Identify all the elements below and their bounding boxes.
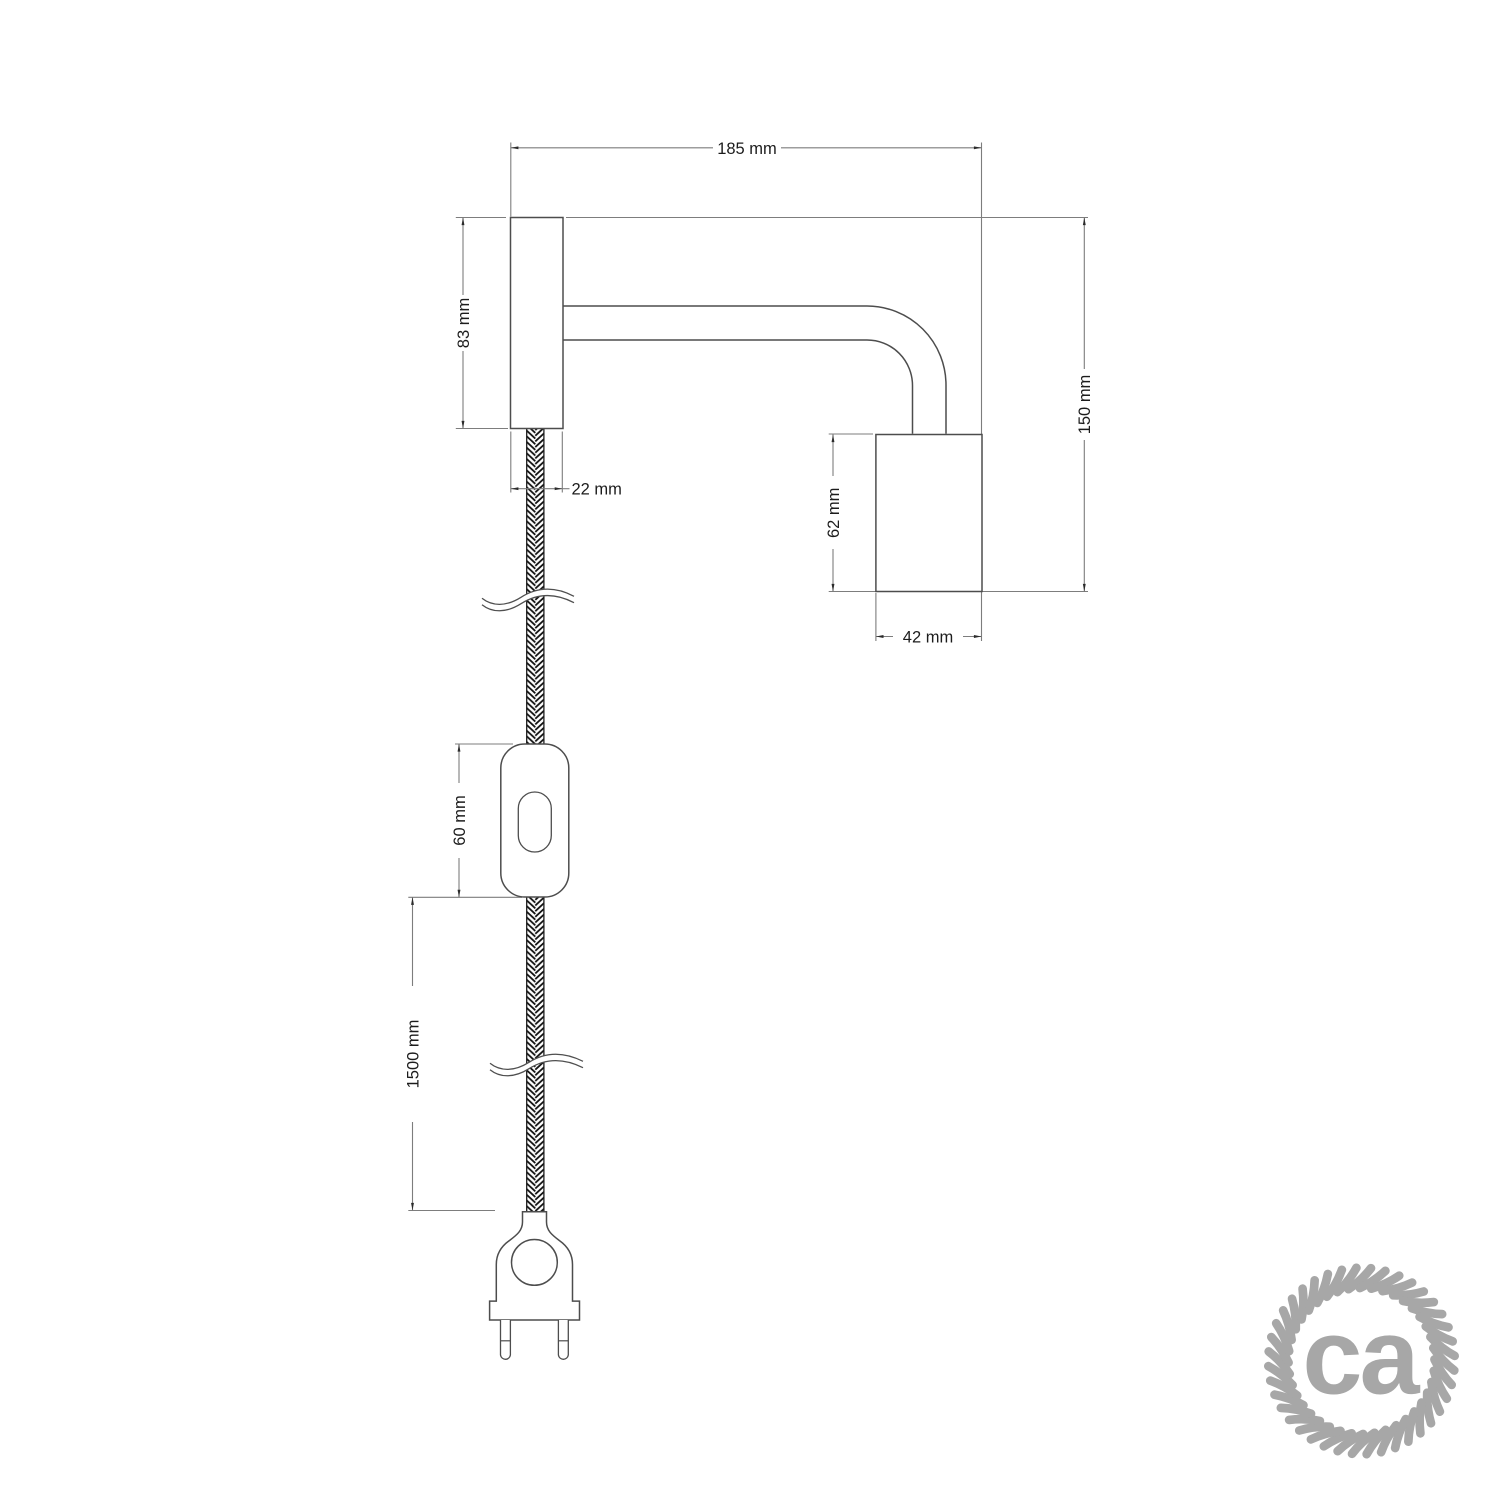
svg-text:150 mm: 150 mm	[1076, 375, 1094, 435]
svg-text:1500 mm: 1500 mm	[404, 1020, 422, 1089]
svg-text:22 mm: 22 mm	[572, 481, 622, 499]
svg-text:60 mm: 60 mm	[451, 795, 469, 845]
svg-text:42 mm: 42 mm	[903, 629, 953, 647]
svg-text:62 mm: 62 mm	[825, 488, 843, 538]
svg-text:ca: ca	[1302, 1296, 1420, 1417]
svg-text:185 mm: 185 mm	[717, 140, 777, 158]
svg-text:83 mm: 83 mm	[455, 298, 473, 348]
